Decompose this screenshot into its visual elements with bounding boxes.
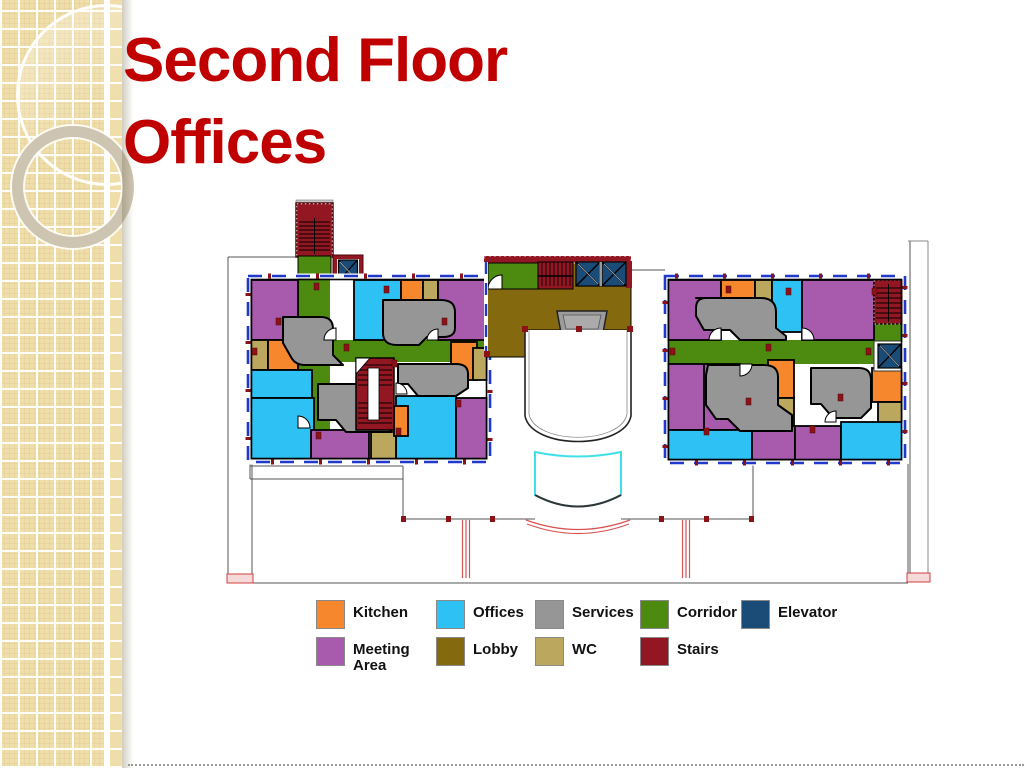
- meeting-area-label: Meeting Area: [353, 642, 415, 674]
- right-wing-elevator: [874, 341, 905, 371]
- sidebar-decoration: [0, 0, 140, 768]
- corridor-swatch: [640, 600, 669, 629]
- terrace-red-details: [227, 516, 930, 583]
- kitchen-label: Kitchen: [353, 605, 425, 621]
- left-wing-stairwell: [356, 358, 394, 430]
- stairs-swatch: [640, 637, 669, 666]
- right-wing-stairwell: [874, 280, 903, 324]
- stairs-label: Stairs: [677, 642, 749, 658]
- lobby-swatch: [436, 637, 465, 666]
- lobby-elevators: [576, 262, 626, 286]
- offices-label: Offices: [473, 605, 545, 621]
- wc-swatch: [535, 637, 564, 666]
- decor-circle-ring: [12, 126, 134, 248]
- floor-plan: [226, 198, 932, 588]
- slide-boundary-line: [128, 764, 1024, 766]
- elevator-label: Elevator: [778, 605, 850, 621]
- central-lobby: [484, 256, 633, 442]
- elevator-swatch: [741, 600, 770, 629]
- meeting-area-swatch: [316, 637, 345, 666]
- slide-title-line2: Offices: [123, 102, 643, 184]
- slide: Second Floor Offices: [0, 0, 1024, 768]
- lobby-stairs: [538, 262, 573, 289]
- offices-swatch: [436, 600, 465, 629]
- entrance-canopy: [535, 452, 621, 507]
- corridor-label: Corridor: [677, 605, 749, 621]
- wc-label: WC: [572, 642, 644, 658]
- atrium-void: [525, 330, 631, 442]
- services-label: Services: [572, 605, 644, 621]
- left-wing: [248, 276, 490, 462]
- lobby-label: Lobby: [473, 642, 545, 658]
- services-swatch: [535, 600, 564, 629]
- right-wing: [665, 276, 905, 463]
- slide-title-line1: Second Floor: [123, 20, 643, 102]
- kitchen-swatch: [316, 600, 345, 629]
- slide-title: Second Floor Offices: [123, 20, 643, 184]
- northwest-stair-tower: [296, 200, 363, 286]
